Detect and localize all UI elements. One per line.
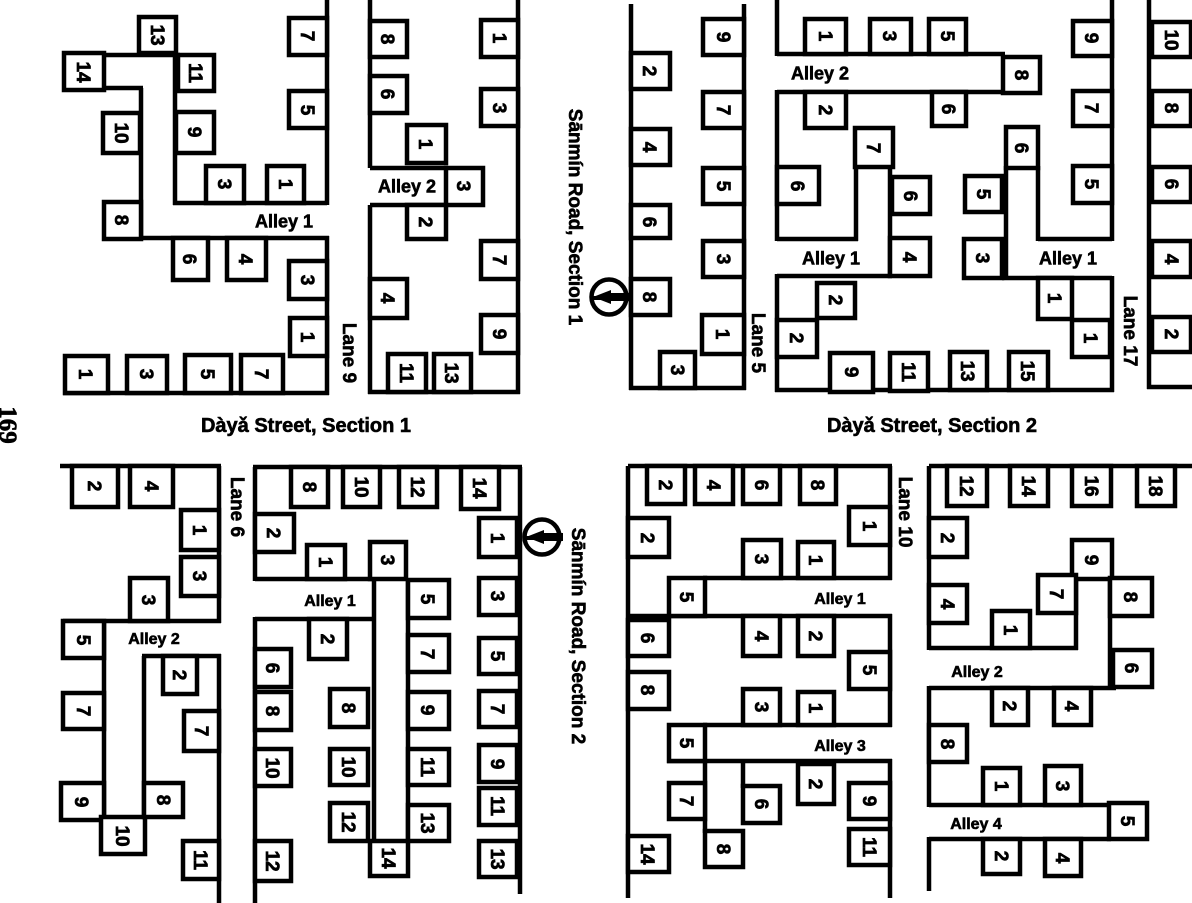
svg-text:9: 9: [1080, 555, 1101, 566]
svg-text:7: 7: [250, 369, 271, 380]
svg-text:7: 7: [486, 704, 507, 715]
svg-text:9: 9: [183, 127, 204, 138]
svg-text:12: 12: [955, 475, 976, 496]
svg-text:Lane 6: Lane 6: [226, 477, 247, 537]
svg-text:6: 6: [1010, 143, 1031, 154]
svg-text:9: 9: [712, 32, 733, 43]
svg-text:4: 4: [702, 480, 723, 491]
svg-text:9: 9: [70, 797, 91, 808]
svg-text:2: 2: [654, 480, 675, 491]
svg-text:5: 5: [1116, 816, 1137, 827]
svg-text:2: 2: [990, 851, 1011, 862]
svg-text:2: 2: [804, 631, 825, 642]
svg-text:8: 8: [376, 34, 397, 45]
svg-text:Sānmín Road, Section 1: Sānmín Road, Section 1: [564, 109, 585, 326]
svg-text:7: 7: [862, 143, 883, 154]
svg-text:3: 3: [452, 181, 473, 192]
svg-text:11: 11: [486, 796, 507, 817]
svg-text:9: 9: [840, 367, 861, 378]
svg-text:4: 4: [1051, 853, 1072, 864]
svg-text:14: 14: [636, 843, 657, 865]
svg-text:1: 1: [274, 179, 295, 190]
svg-text:11: 11: [189, 850, 210, 871]
svg-text:1: 1: [486, 533, 507, 544]
svg-text:7: 7: [712, 105, 733, 116]
svg-text:Alley 1: Alley 1: [255, 212, 313, 232]
svg-text:9: 9: [488, 329, 509, 340]
svg-text:Alley 2: Alley 2: [951, 664, 1003, 681]
svg-text:2: 2: [814, 105, 835, 116]
svg-text:4: 4: [638, 142, 659, 153]
svg-text:8: 8: [1119, 592, 1140, 603]
svg-text:5: 5: [486, 651, 507, 662]
svg-text:1: 1: [188, 525, 209, 536]
svg-text:1: 1: [804, 703, 825, 714]
svg-text:1: 1: [999, 625, 1020, 636]
svg-text:6: 6: [636, 633, 657, 644]
svg-text:Alley 2: Alley 2: [378, 177, 436, 197]
svg-text:3: 3: [213, 179, 234, 190]
svg-text:5: 5: [296, 105, 317, 116]
svg-text:8: 8: [638, 292, 659, 303]
svg-text:Dàyǎ Street, Section 2: Dàyǎ Street, Section 2: [827, 415, 1037, 437]
svg-text:8: 8: [1160, 103, 1181, 114]
svg-text:6: 6: [786, 181, 807, 192]
svg-text:3: 3: [137, 595, 158, 606]
svg-text:11: 11: [184, 63, 205, 84]
svg-text:Lane 9: Lane 9: [338, 323, 359, 383]
svg-text:15: 15: [1016, 360, 1037, 382]
svg-text:5: 5: [712, 181, 733, 192]
svg-text:Alley 1: Alley 1: [304, 593, 356, 610]
svg-text:6: 6: [261, 663, 282, 674]
svg-text:5: 5: [72, 635, 93, 646]
svg-text:7: 7: [190, 726, 211, 737]
svg-text:8: 8: [936, 739, 957, 750]
svg-text:8: 8: [337, 703, 358, 714]
svg-text:8: 8: [298, 482, 319, 493]
svg-text:1: 1: [296, 332, 317, 343]
svg-text:2: 2: [936, 533, 957, 544]
svg-text:14: 14: [377, 847, 398, 869]
svg-text:8: 8: [152, 795, 173, 806]
svg-text:8: 8: [261, 706, 282, 717]
svg-text:3: 3: [971, 253, 992, 264]
svg-text:6: 6: [1120, 663, 1141, 674]
svg-text:Lane 17: Lane 17: [1119, 296, 1140, 367]
svg-text:6: 6: [750, 799, 771, 810]
svg-text:10: 10: [1160, 29, 1181, 50]
svg-text:5: 5: [936, 31, 957, 42]
svg-text:2: 2: [785, 333, 806, 344]
svg-text:10: 10: [350, 476, 371, 497]
svg-text:1: 1: [314, 557, 335, 568]
svg-text:5: 5: [196, 369, 217, 380]
svg-text:8: 8: [636, 685, 657, 696]
svg-text:14: 14: [468, 477, 489, 499]
svg-text:18: 18: [1144, 475, 1165, 496]
svg-text:Dàyǎ Street, Section 1: Dàyǎ Street, Section 1: [201, 415, 411, 437]
svg-text:2: 2: [636, 533, 657, 544]
svg-text:Alley 3: Alley 3: [814, 738, 866, 755]
svg-text:1: 1: [990, 781, 1011, 792]
svg-text:4: 4: [936, 599, 957, 610]
svg-text:1: 1: [414, 139, 435, 150]
svg-text:6: 6: [376, 89, 397, 100]
svg-text:Alley 1: Alley 1: [802, 249, 860, 269]
svg-text:Alley 2: Alley 2: [128, 631, 180, 648]
svg-text:8: 8: [1010, 70, 1031, 81]
svg-text:Lane 10: Lane 10: [894, 477, 915, 548]
svg-text:3: 3: [1051, 781, 1072, 792]
svg-text:3: 3: [666, 365, 687, 376]
svg-text:9: 9: [858, 796, 879, 807]
svg-text:7: 7: [296, 31, 317, 42]
svg-text:7: 7: [675, 796, 696, 807]
svg-text:9: 9: [486, 759, 507, 770]
svg-text:1: 1: [858, 521, 879, 532]
svg-text:4: 4: [140, 481, 161, 492]
svg-text:169: 169: [0, 406, 21, 444]
svg-text:4: 4: [234, 254, 255, 265]
svg-text:12: 12: [337, 811, 358, 832]
svg-text:7: 7: [72, 706, 93, 717]
svg-text:Alley 4: Alley 4: [950, 816, 1002, 833]
svg-text:14: 14: [72, 61, 93, 83]
svg-text:8: 8: [110, 215, 131, 226]
svg-text:Alley 2: Alley 2: [791, 64, 849, 84]
svg-text:9: 9: [1080, 33, 1101, 44]
svg-text:1: 1: [804, 555, 825, 566]
svg-text:10: 10: [111, 825, 132, 846]
svg-text:7: 7: [1080, 103, 1101, 114]
svg-text:2: 2: [804, 779, 825, 790]
svg-text:5: 5: [416, 594, 437, 605]
svg-text:3: 3: [878, 31, 899, 42]
svg-text:2: 2: [262, 528, 283, 539]
svg-text:3: 3: [188, 571, 209, 582]
svg-text:10: 10: [261, 757, 282, 778]
svg-text:13: 13: [440, 362, 461, 383]
svg-text:5: 5: [675, 592, 696, 603]
svg-text:14: 14: [1017, 475, 1038, 497]
svg-text:6: 6: [638, 217, 659, 228]
svg-text:1: 1: [488, 33, 509, 44]
svg-text:3: 3: [486, 591, 507, 602]
svg-text:5: 5: [972, 189, 993, 200]
svg-text:4: 4: [376, 293, 397, 304]
svg-text:11: 11: [395, 363, 416, 384]
svg-text:3: 3: [750, 702, 771, 713]
svg-text:6: 6: [937, 104, 958, 115]
svg-text:Alley 1: Alley 1: [1039, 249, 1097, 269]
svg-text:4: 4: [898, 252, 919, 263]
svg-text:5: 5: [858, 665, 879, 676]
svg-text:5: 5: [1080, 179, 1101, 190]
svg-text:1: 1: [74, 369, 95, 380]
svg-text:10: 10: [337, 756, 358, 777]
svg-text:4: 4: [750, 631, 771, 642]
svg-text:9: 9: [416, 705, 437, 716]
svg-text:13: 13: [956, 360, 977, 381]
svg-text:6: 6: [1160, 179, 1181, 190]
svg-text:2: 2: [998, 701, 1019, 712]
svg-text:Alley 1: Alley 1: [814, 591, 866, 608]
svg-text:2: 2: [824, 295, 845, 306]
svg-text:7: 7: [488, 255, 509, 266]
svg-text:11: 11: [858, 837, 879, 858]
svg-text:3: 3: [712, 254, 733, 265]
svg-text:2: 2: [1160, 329, 1181, 340]
svg-text:13: 13: [146, 24, 167, 45]
svg-text:2: 2: [638, 66, 659, 77]
svg-text:10: 10: [110, 122, 131, 143]
svg-text:13: 13: [416, 812, 437, 833]
svg-text:11: 11: [897, 362, 918, 383]
svg-text:6: 6: [178, 254, 199, 265]
svg-text:5: 5: [675, 738, 696, 749]
svg-text:1: 1: [1079, 333, 1100, 344]
svg-text:7: 7: [1045, 589, 1066, 600]
svg-text:Lane 5: Lane 5: [747, 313, 768, 374]
svg-text:1: 1: [711, 329, 732, 340]
svg-text:16: 16: [1080, 475, 1101, 496]
svg-text:6: 6: [899, 191, 920, 202]
svg-text:3: 3: [376, 555, 397, 566]
svg-text:7: 7: [416, 649, 437, 660]
svg-text:4: 4: [1060, 701, 1081, 712]
svg-text:12: 12: [406, 476, 427, 497]
svg-text:1: 1: [814, 31, 835, 42]
svg-text:2: 2: [83, 481, 104, 492]
svg-text:4: 4: [1160, 254, 1181, 265]
svg-text:8: 8: [806, 480, 827, 491]
svg-text:1: 1: [1043, 293, 1064, 304]
svg-text:13: 13: [486, 848, 507, 869]
svg-text:12: 12: [261, 850, 282, 871]
svg-text:2: 2: [168, 670, 189, 681]
svg-text:Sānmín Road, Section 2: Sānmín Road, Section 2: [567, 528, 588, 744]
svg-text:2: 2: [316, 634, 337, 645]
svg-text:8: 8: [712, 844, 733, 855]
svg-text:3: 3: [750, 554, 771, 565]
svg-text:3: 3: [488, 103, 509, 114]
svg-text:11: 11: [416, 757, 437, 778]
svg-text:2: 2: [414, 217, 435, 228]
svg-text:6: 6: [750, 480, 771, 491]
svg-text:3: 3: [135, 369, 156, 380]
svg-text:3: 3: [296, 275, 317, 286]
